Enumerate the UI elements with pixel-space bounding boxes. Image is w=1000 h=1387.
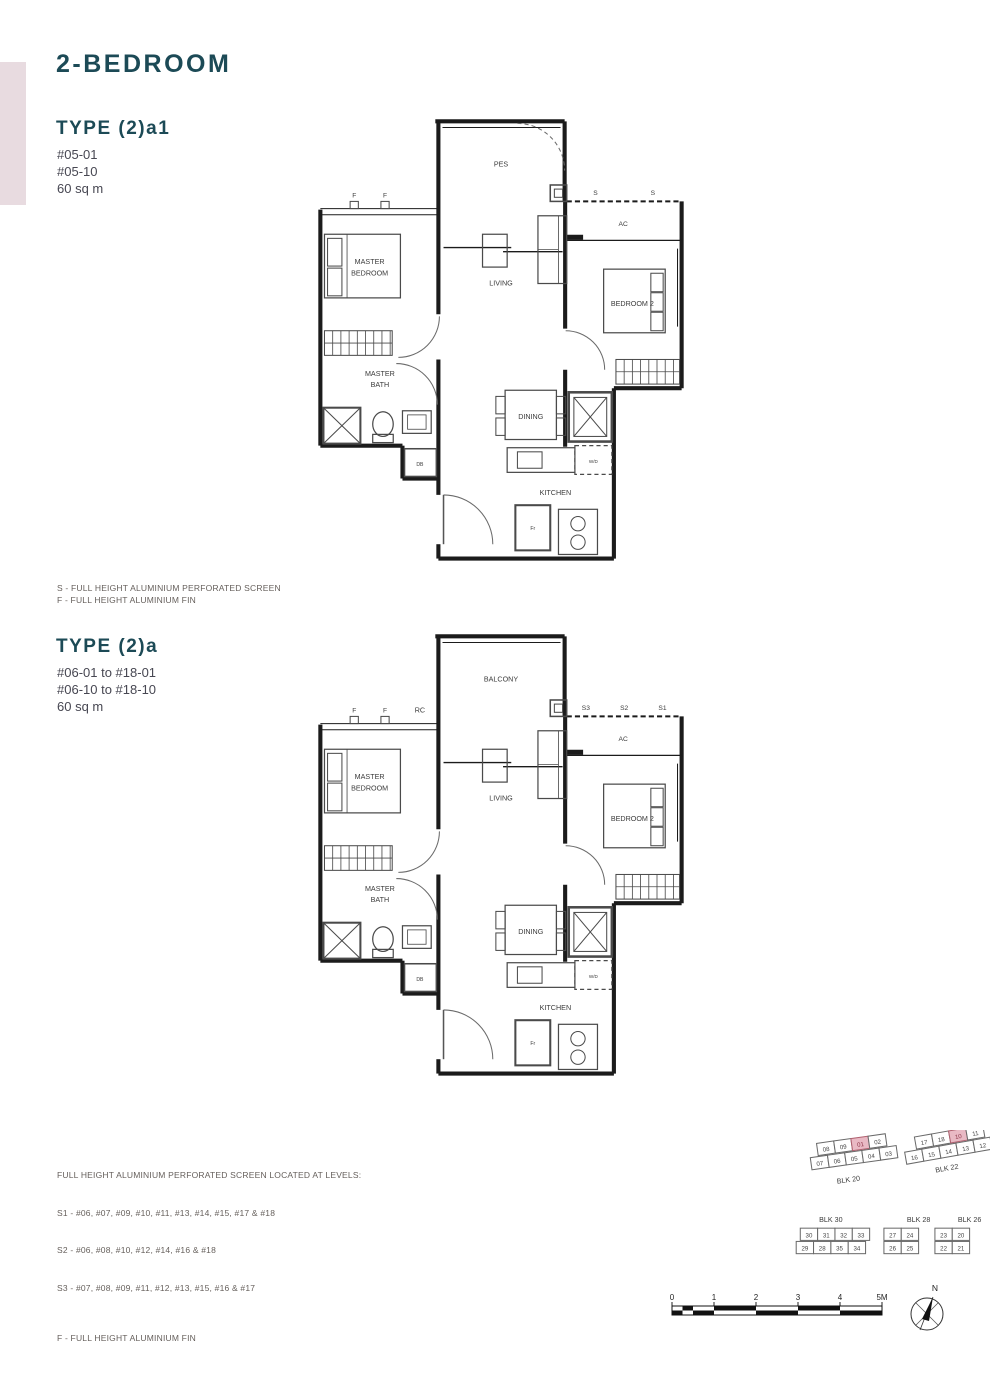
room-label-master-bedroom: BEDROOM <box>351 784 388 792</box>
keyplan-block: BLK 22171810111615141312 <box>902 1130 990 1179</box>
unit-number-line: #06-10 to #18-10 <box>57 681 156 698</box>
walls <box>320 121 681 558</box>
room-label-master-bath: MASTER <box>365 885 395 893</box>
unit-number-line: #06-01 to #18-01 <box>57 664 156 681</box>
scale-tick-label: 5M <box>876 1293 887 1302</box>
scale-bar-segment <box>756 1311 798 1316</box>
unit-area: 60 sq m <box>57 180 103 197</box>
type-2a-unit-info: #06-01 to #18-01 #06-10 to #18-10 60 sq … <box>57 664 156 715</box>
marker-screen: S3 <box>582 705 590 712</box>
keyplan-unit-number: 35 <box>836 1246 843 1253</box>
north-needle <box>922 1297 933 1321</box>
keyplan-unit-number: 24 <box>907 1232 914 1239</box>
room-label-bedroom2: BEDROOM 2 <box>611 300 654 308</box>
keyplan-unit-number: 23 <box>940 1232 947 1239</box>
room-label-master-bedroom: MASTER <box>355 773 385 781</box>
room-labels: PESLIVINGMASTERBEDROOMMASTERBATHBEDROOM … <box>351 161 656 532</box>
room-label-kitchen: KITCHEN <box>540 489 571 497</box>
scale-tick-label: 4 <box>838 1293 843 1302</box>
fin-note-line: F - FULL HEIGHT ALUMINIUM FIN <box>57 594 281 606</box>
label-distribution-board: DB <box>416 977 424 983</box>
room-label-ac: AC <box>619 221 628 228</box>
scale-tick-label: 2 <box>754 1293 759 1302</box>
keyplan-block: BLK 2827242625 <box>884 1216 930 1254</box>
scale-bar-segment <box>840 1311 882 1316</box>
scale-bar-segment <box>693 1311 714 1316</box>
keyplan-unit-number: 32 <box>840 1232 847 1239</box>
marker-fin: F <box>383 707 387 714</box>
room-label-living: LIVING <box>489 795 513 803</box>
keyplan-unit-number: 27 <box>889 1232 896 1239</box>
marker-rc-ledge: RC <box>415 706 425 714</box>
brochure-page: 2-BEDROOM TYPE (2)a1 #05-01 #05-10 60 sq… <box>0 0 1000 1387</box>
marker-screen: S1 <box>658 705 666 712</box>
scale-bar-segment <box>798 1306 840 1311</box>
room-label-master-bath: BATH <box>371 896 390 904</box>
scale-bar-segment <box>672 1311 683 1316</box>
room-label-master-bath: MASTER <box>365 370 395 378</box>
scale-tick-label: 0 <box>670 1293 675 1302</box>
keyplan-unit-number: 34 <box>853 1246 860 1253</box>
label-fridge: Fr <box>530 526 535 532</box>
marker-fin: F <box>352 192 356 199</box>
room-label-bedroom2: BEDROOM 2 <box>611 815 654 823</box>
north-label: N <box>932 1283 938 1293</box>
marker-screen: S2 <box>620 705 628 712</box>
keyplan-unit-number: 31 <box>823 1232 830 1239</box>
type-2a1-heading: TYPE (2)a1 <box>56 118 170 140</box>
keyplan-block-name: BLK 22 <box>935 1163 959 1175</box>
room-label-dining: DINING <box>518 928 544 936</box>
walls <box>320 636 681 1073</box>
page-title: 2-BEDROOM <box>56 50 231 79</box>
keyplan-block-name: BLK 26 <box>958 1216 981 1224</box>
keyplan-unit-number: 22 <box>940 1246 947 1253</box>
keyplan-unit-number: 29 <box>801 1246 808 1253</box>
keyplan-unit-number: 30 <box>806 1232 813 1239</box>
room-label-master-bedroom: MASTER <box>355 258 385 266</box>
marker-screen: S <box>651 190 656 197</box>
room-label-ac: AC <box>619 736 628 743</box>
keyplan-unit-number: 20 <box>958 1232 965 1239</box>
label-fridge: Fr <box>530 1041 535 1047</box>
room-label-dining: DINING <box>518 413 544 421</box>
keyplan-unit-number: 26 <box>889 1246 896 1253</box>
room-label-living: LIVING <box>489 280 513 288</box>
key-plan: BLK 20080901020706050403BLK 221718101116… <box>786 1130 990 1258</box>
room-label-kitchen: KITCHEN <box>540 1004 571 1012</box>
north-compass: N <box>893 1277 963 1347</box>
keyplan-block: BLK 303031323329283534 <box>796 1216 869 1254</box>
marker-fin: F <box>352 707 356 714</box>
marker-fin: F <box>383 192 387 199</box>
scale-tick-label: 1 <box>712 1293 717 1302</box>
keyplan-unit-number: 25 <box>907 1246 914 1253</box>
type-2a-heading: TYPE (2)a <box>56 636 158 658</box>
label-washer-dryer: W/D <box>589 974 599 979</box>
footnote-screen-levels-header: FULL HEIGHT ALUMINIUM PERFORATED SCREEN … <box>57 1169 537 1182</box>
keyplan-block-name: BLK 28 <box>907 1216 930 1224</box>
keyplan-block: BLK 2623202221 <box>935 1216 981 1254</box>
keyplan-block: BLK 20080901020706050403 <box>808 1132 900 1188</box>
keyplan-block-name: BLK 20 <box>836 1175 860 1186</box>
footnote-s2: S2 - #06, #08, #10, #12, #14, #16 & #18 <box>57 1244 537 1257</box>
keyplan-unit-number: 33 <box>858 1232 865 1239</box>
room-label-pes: PES <box>494 161 509 169</box>
scale-tick-label: 3 <box>796 1293 801 1302</box>
keyplan-unit-number: 28 <box>819 1246 826 1253</box>
unit-number-line: #05-10 <box>57 163 103 180</box>
marker-screen: S <box>593 190 598 197</box>
footnote-fin: F - FULL HEIGHT ALUMINIUM FIN <box>57 1332 537 1345</box>
scale-bar-segment <box>683 1306 694 1311</box>
screen-fin-note: S - FULL HEIGHT ALUMINIUM PERFORATED SCR… <box>57 582 281 606</box>
floor-plan-type-2a: BALCONYLIVINGMASTERBEDROOMMASTERBATHBEDR… <box>306 628 696 1085</box>
left-accent-bar <box>0 62 26 205</box>
type-2a1-unit-info: #05-01 #05-10 60 sq m <box>57 146 103 197</box>
footnote-s3: S3 - #07, #08, #09, #11, #12, #13, #15, … <box>57 1282 537 1295</box>
room-label-balcony: BALCONY <box>484 676 518 684</box>
footnote-s1: S1 - #06, #07, #09, #10, #11, #13, #14, … <box>57 1207 537 1220</box>
keyplan-unit-number: 21 <box>958 1246 965 1253</box>
footnotes-block: FULL HEIGHT ALUMINIUM PERFORATED SCREEN … <box>57 1144 537 1387</box>
floor-plan-type-2a1: PESLIVINGMASTERBEDROOMMASTERBATHBEDROOM … <box>306 113 696 570</box>
room-labels: BALCONYLIVINGMASTERBEDROOMMASTERBATHBEDR… <box>351 676 667 1047</box>
screen-note-line: S - FULL HEIGHT ALUMINIUM PERFORATED SCR… <box>57 582 281 594</box>
label-distribution-board: DB <box>416 462 424 468</box>
label-washer-dryer: W/D <box>589 459 599 464</box>
room-label-master-bedroom: BEDROOM <box>351 269 388 277</box>
unit-area: 60 sq m <box>57 698 156 715</box>
door-swings <box>396 123 604 544</box>
keyplan-block-name: BLK 30 <box>819 1216 842 1224</box>
unit-number-line: #05-01 <box>57 146 103 163</box>
room-label-master-bath: BATH <box>371 381 390 389</box>
scale-bar: 012345M <box>662 1284 902 1330</box>
scale-bar-segment <box>714 1306 756 1311</box>
